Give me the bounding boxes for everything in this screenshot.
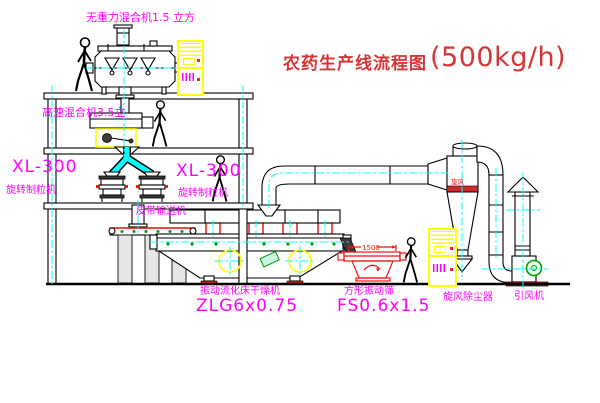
diagram-title: 农药生产线流程图 (500kg/h) <box>283 42 566 74</box>
cabinet-vent-lines <box>431 231 454 244</box>
label-granulator-right-name: 旋转制粒机 <box>178 189 228 199</box>
cabinet-indicator <box>197 78 200 81</box>
label-fan: 引风机 <box>514 292 544 302</box>
cabinet-nameplate <box>182 73 195 81</box>
gravity-free-mixer <box>86 41 188 113</box>
label-granulator-right-model: XL-300 <box>176 163 241 180</box>
cabinet-window <box>183 58 195 65</box>
sieve-dim-text: 1500 <box>362 244 380 252</box>
outlet-duct <box>477 146 512 283</box>
cabinet-divider <box>179 67 202 69</box>
label-sieve-model: FS0.6x1.5 <box>337 298 430 315</box>
cabinet-window <box>434 246 446 253</box>
label-belt-conveyor: 皮带输送机 <box>136 207 186 217</box>
induced-draft-fan <box>506 256 548 286</box>
label-cyclone: 旋风除尘器 <box>443 293 493 303</box>
cabinet-nameplate <box>433 264 446 272</box>
control-cabinet-top <box>177 40 204 96</box>
granulator-left <box>96 172 128 202</box>
cabinet-divider <box>430 255 455 257</box>
control-cabinet-bottom <box>428 228 457 287</box>
title-chinese: 农药生产线流程图 <box>283 49 427 74</box>
label-second-mixer: 高速混合机3.5立 <box>42 107 126 118</box>
building-column-front <box>239 209 247 284</box>
person-second-floor <box>153 101 167 147</box>
cabinet-indicator <box>450 247 453 250</box>
cabinet-vent-lines <box>180 43 201 56</box>
granulator-right <box>136 172 168 202</box>
process-flow-diagram: 农药生产线流程图 (500kg/h) 无重力混合机1.5 立方 高速混合机3.5… <box>0 0 600 403</box>
label-dryer-model: ZLG6x0.75 <box>196 298 298 315</box>
cabinet-indicator <box>197 59 200 62</box>
mixer-feed-pipe <box>114 25 132 45</box>
dryer-spring-mounts <box>203 223 335 234</box>
label-top-mixer: 无重力混合机1.5 立方 <box>86 12 195 23</box>
label-granulator-left-name: 旋转制粒机 <box>6 186 56 196</box>
exhaust-duct <box>258 158 447 216</box>
cabinet-indicator <box>450 268 453 271</box>
title-capacity: (500kg/h) <box>430 42 566 73</box>
label-granulator-left-model: XL-300 <box>12 159 77 176</box>
